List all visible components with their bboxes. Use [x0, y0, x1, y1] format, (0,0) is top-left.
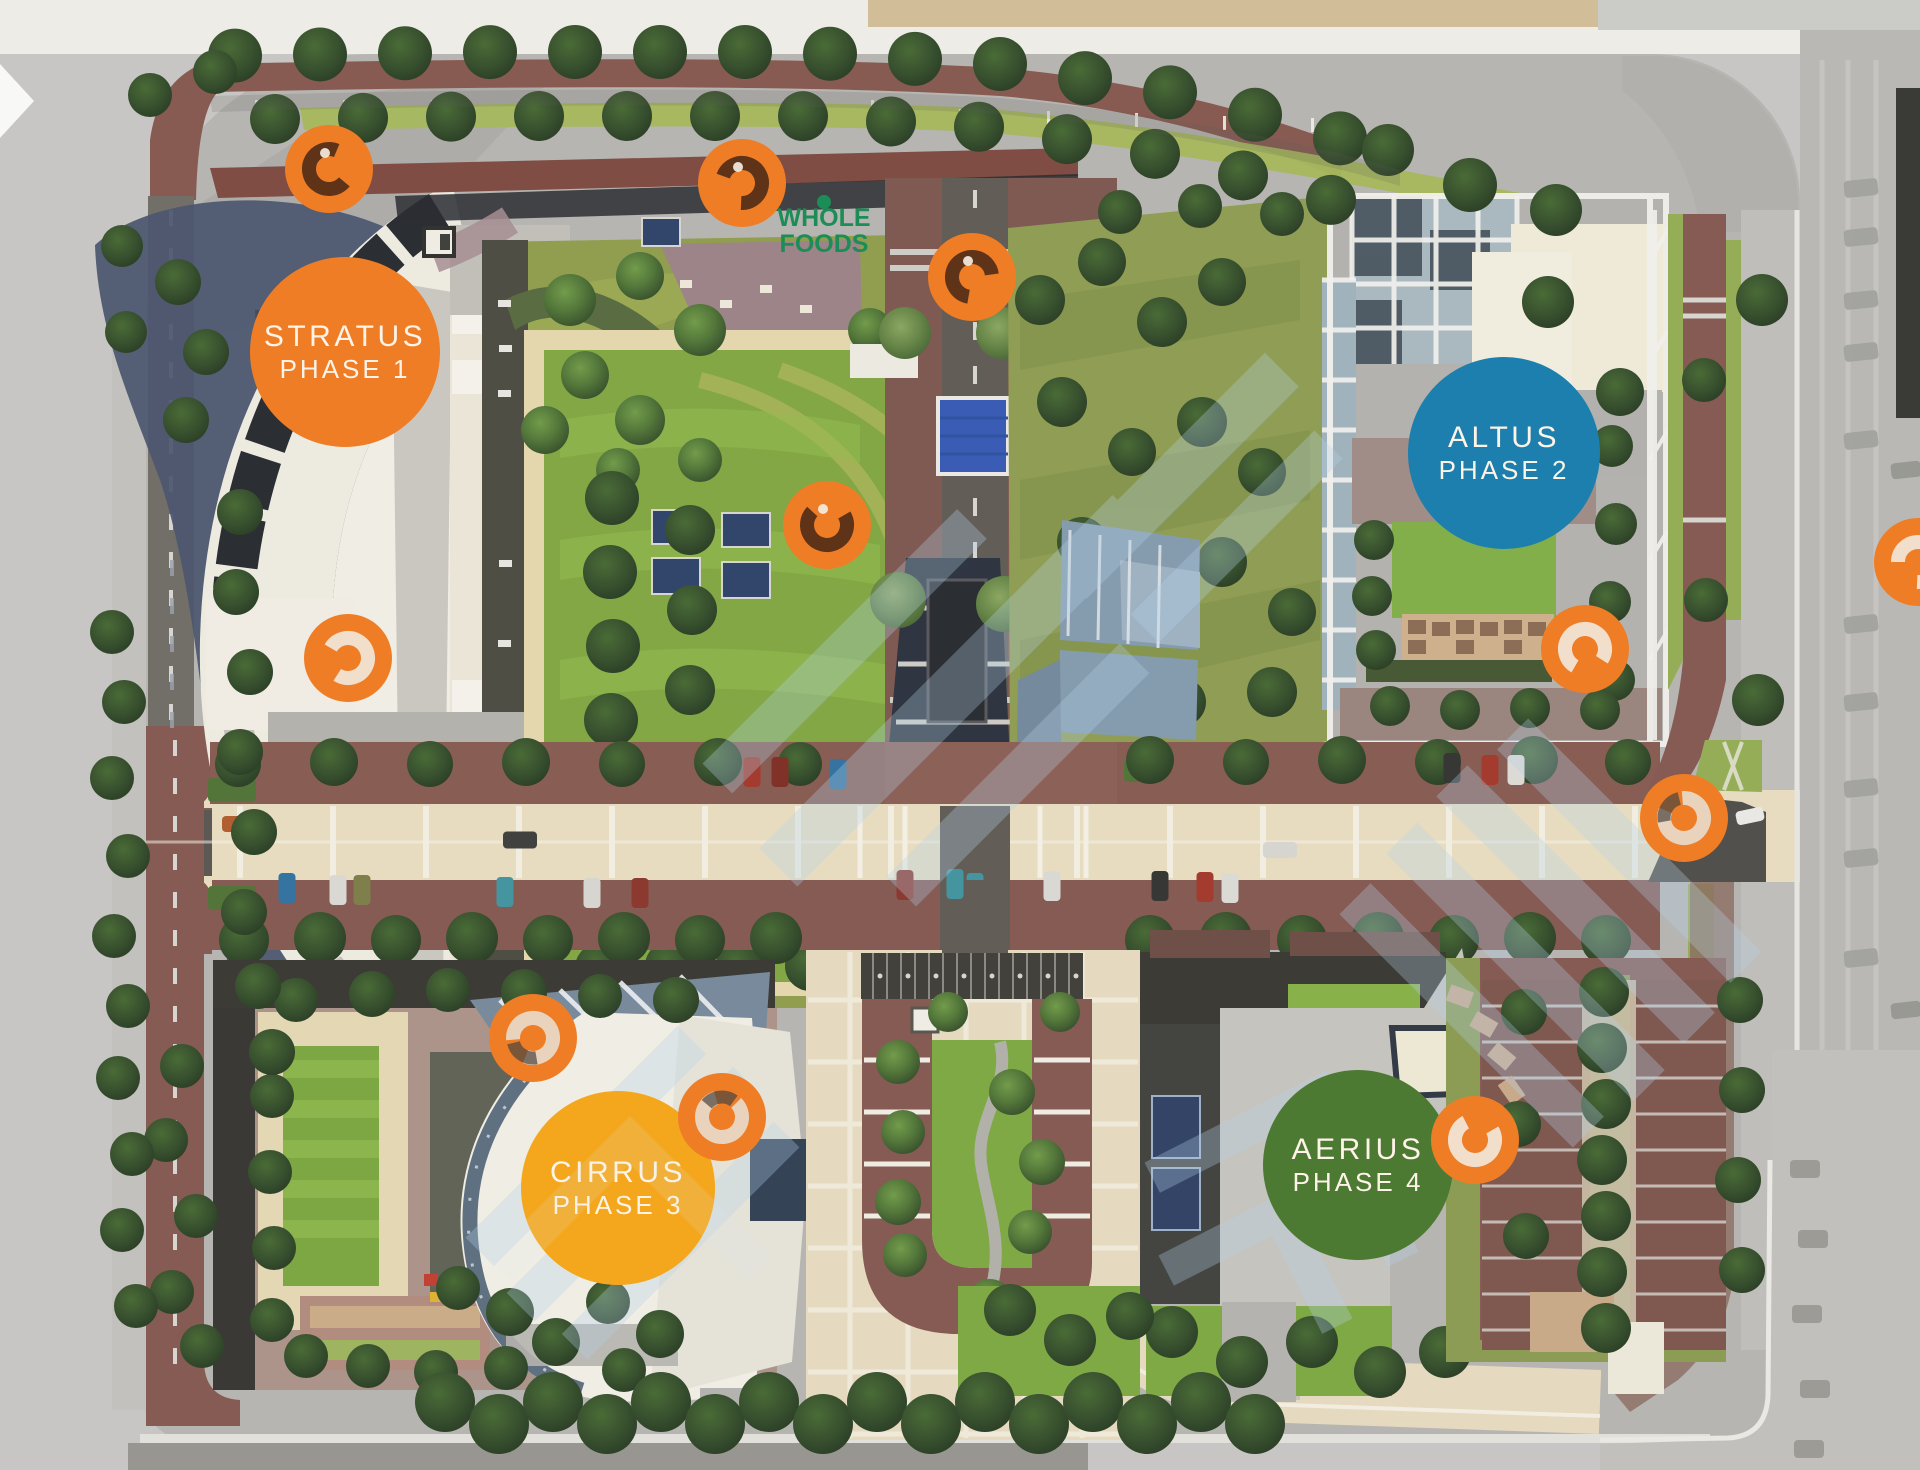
svg-text:PHASE 4: PHASE 4 [1293, 1167, 1424, 1197]
svg-text:PHASE 2: PHASE 2 [1439, 455, 1570, 485]
svg-text:PHASE 1: PHASE 1 [280, 354, 411, 384]
svg-text:ALTUS: ALTUS [1448, 421, 1560, 454]
svg-text:AERIUS: AERIUS [1292, 1133, 1425, 1166]
svg-text:STRATUS: STRATUS [264, 320, 426, 353]
